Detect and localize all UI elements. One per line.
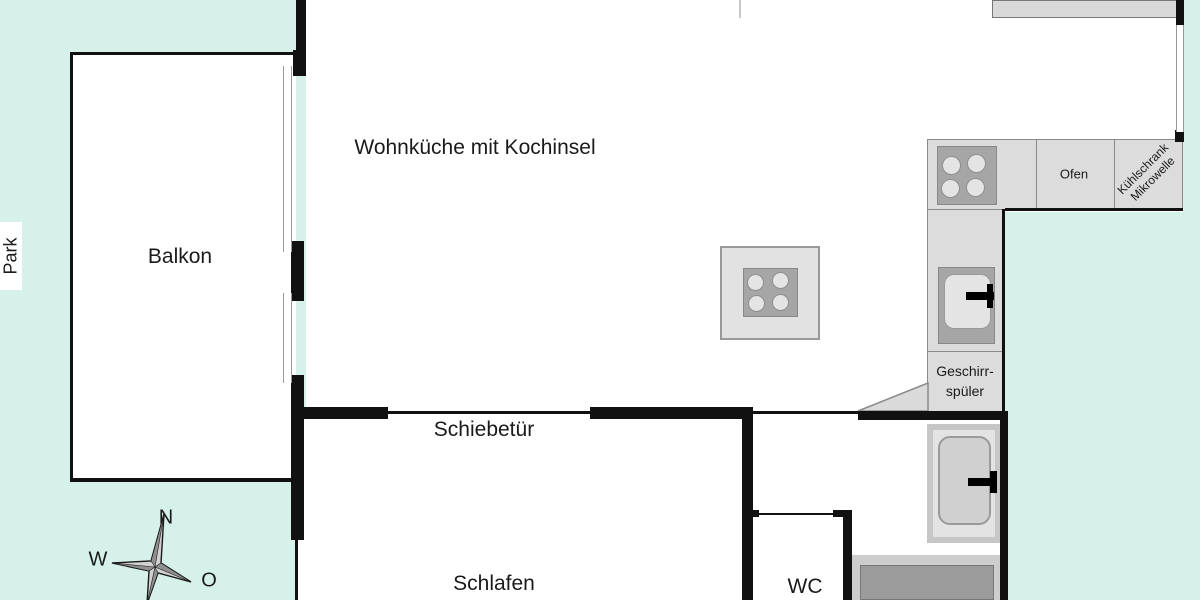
wall [291,375,304,540]
dishwasher-label-line: spüler [929,381,1001,401]
wall [300,407,388,419]
wall [590,407,743,419]
balcony-label: Balkon [148,245,212,269]
wall [1176,0,1184,27]
wall [291,241,304,301]
wc-label: WC [788,575,823,599]
shower-icon [850,555,1003,600]
wall-thin [295,538,298,600]
wall-faint [739,0,741,18]
right-wall-window-icon [1176,25,1184,132]
dishwasher-label-line: Geschirr- [929,361,1001,381]
counter-divider [927,351,1004,352]
wall-thin [1005,208,1183,211]
counter-divider [1114,140,1115,209]
bedroom-label: Schlafen [453,572,535,596]
floor-plan: Park [0,0,1200,600]
wall [1000,411,1008,600]
island-cooktop-icon [743,268,798,317]
compass-north-label: N [159,507,173,530]
wc-door-line [759,513,834,515]
wall [296,0,306,57]
oven-label: Ofen [1060,167,1088,182]
compass-east-label: O [201,570,217,593]
counter-divider [1036,140,1037,209]
wall [293,50,306,76]
balcony-window-icon [283,293,292,383]
wall-thin [1002,209,1005,413]
wall [858,411,1003,420]
top-cabinet [992,0,1177,18]
park-label: Park [1,237,22,274]
compass-west-label: W [89,549,108,572]
counter-divider [927,209,1004,210]
dishwasher-label: Geschirr- spüler [929,361,1001,402]
sliding-door-line [388,411,590,414]
room-living-kitchen-area [306,0,1005,420]
bath-faucet-icon [990,471,997,493]
sliding-door-label: Schiebetür [434,418,534,442]
balcony-window-icon [283,66,292,252]
wall [745,510,759,517]
living-kitchen-label: Wohnküche mit Kochinsel [354,136,595,160]
kitchen-island [720,246,820,340]
cooktop-icon [937,146,997,205]
kitchen-faucet-icon [987,284,993,308]
wall [742,407,753,600]
doorway-line [753,411,858,414]
wall [843,510,852,600]
